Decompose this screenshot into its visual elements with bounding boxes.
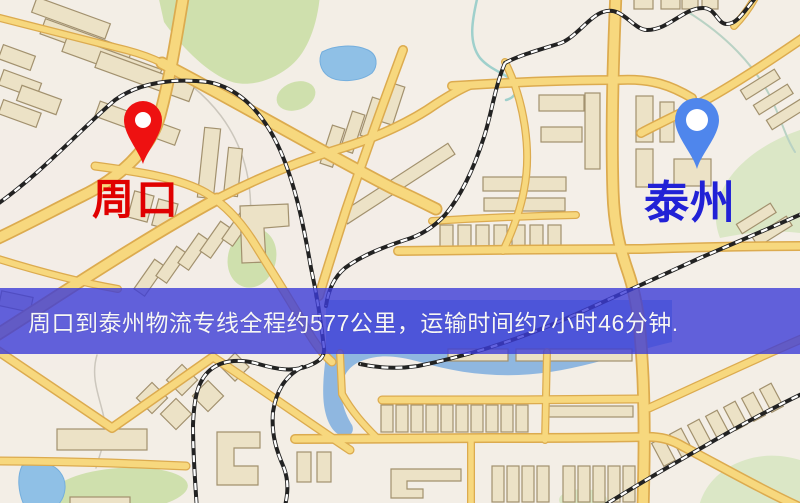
origin-city-label: 周口 xyxy=(92,179,180,221)
destination-city-label: 泰州 xyxy=(644,180,736,225)
route-info-banner: 周口到泰州物流专线全程约577公里，运输时间约7小时46分钟. xyxy=(0,288,800,354)
origin-pin[interactable] xyxy=(119,99,167,170)
route-info-text: 周口到泰州物流专线全程约577公里，运输时间约7小时46分钟. xyxy=(28,304,679,338)
location-pin-icon xyxy=(119,99,167,165)
map-view[interactable]: 周口到泰州物流专线全程约577公里，运输时间约7小时46分钟. 周口 泰州 xyxy=(0,0,800,503)
location-pin-icon xyxy=(671,96,723,170)
destination-pin[interactable] xyxy=(671,96,723,175)
map-tiles xyxy=(0,0,800,503)
